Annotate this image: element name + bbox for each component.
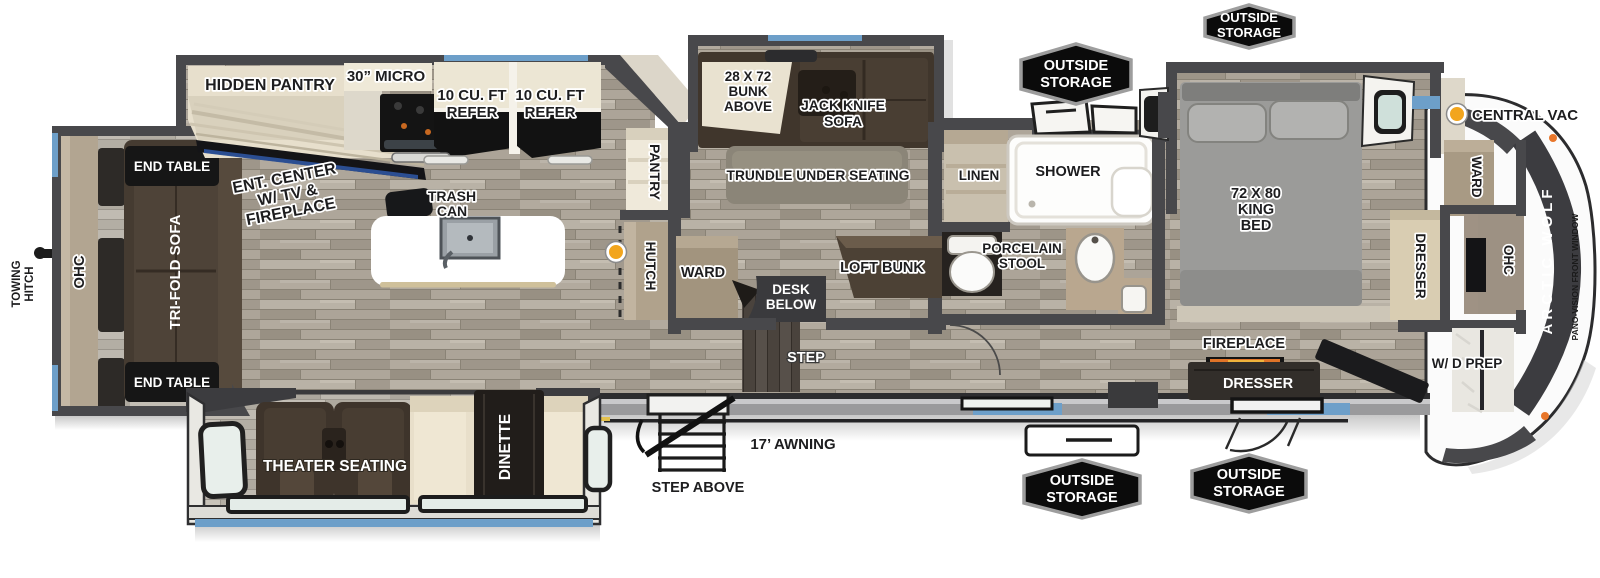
svg-text:10 CU. FT: 10 CU. FT: [515, 87, 584, 104]
svg-text:TRI-FOLD SOFA: TRI-FOLD SOFA: [167, 214, 184, 329]
svg-text:BELOW: BELOW: [766, 297, 817, 312]
svg-text:BUNK: BUNK: [729, 84, 768, 99]
svg-text:END TABLE: END TABLE: [134, 159, 210, 174]
svg-text:END TABLE: END TABLE: [134, 375, 210, 390]
svg-text:REFER: REFER: [447, 104, 498, 121]
svg-text:28 X 72: 28 X 72: [725, 69, 772, 84]
svg-text:72 X 80: 72 X 80: [1231, 186, 1281, 202]
svg-text:DRESSER: DRESSER: [1223, 376, 1294, 392]
svg-text:OHC: OHC: [71, 255, 88, 289]
svg-text:OHC: OHC: [1501, 245, 1516, 275]
svg-text:BED: BED: [1241, 218, 1272, 234]
svg-text:STORAGE: STORAGE: [1213, 484, 1285, 500]
svg-text:STEP: STEP: [787, 350, 825, 366]
svg-text:STEP ABOVE: STEP ABOVE: [652, 480, 745, 496]
svg-text:SOFA: SOFA: [824, 113, 862, 129]
svg-text:DESK: DESK: [772, 282, 810, 297]
svg-text:OUTSIDE: OUTSIDE: [1044, 58, 1109, 74]
svg-text:DINETTE: DINETTE: [497, 414, 514, 480]
svg-text:OUTSIDE: OUTSIDE: [1217, 467, 1282, 483]
svg-text:LINEN: LINEN: [959, 168, 1000, 183]
svg-text:ARCTIC WOLF: ARCTIC WOLF: [1539, 186, 1556, 335]
svg-text:ABOVE: ABOVE: [724, 99, 772, 114]
svg-text:PORCELAIN: PORCELAIN: [982, 241, 1062, 256]
svg-text:PANO-VISION FRONT WINDOW: PANO-VISION FRONT WINDOW: [1570, 213, 1580, 341]
svg-text:30” MICRO: 30” MICRO: [347, 68, 426, 85]
svg-text:REFER: REFER: [525, 104, 576, 121]
svg-text:HUTCH: HUTCH: [643, 242, 659, 291]
svg-text:STORAGE: STORAGE: [1046, 490, 1118, 506]
svg-text:SHOWER: SHOWER: [1035, 164, 1101, 180]
svg-text:HIDDEN PANTRY: HIDDEN PANTRY: [205, 77, 335, 94]
svg-text:TOWING: TOWING: [11, 260, 23, 307]
svg-text:OUTSIDE: OUTSIDE: [1050, 473, 1115, 489]
svg-text:FIREPLACE: FIREPLACE: [1203, 336, 1286, 352]
svg-text:DRESSER: DRESSER: [1413, 233, 1428, 299]
svg-text:THEATER SEATING: THEATER SEATING: [263, 458, 407, 475]
svg-text:PANTRY: PANTRY: [647, 144, 663, 201]
svg-text:KING: KING: [1238, 202, 1274, 218]
svg-text:TRASH: TRASH: [428, 188, 476, 204]
svg-text:10 CU. FT: 10 CU. FT: [437, 87, 506, 104]
svg-text:HITCH: HITCH: [24, 266, 36, 301]
svg-text:LOFT BUNK: LOFT BUNK: [840, 260, 924, 276]
svg-text:TRUNDLE UNDER SEATING: TRUNDLE UNDER SEATING: [727, 168, 910, 183]
svg-text:CENTRAL VAC: CENTRAL VAC: [1472, 107, 1578, 124]
svg-text:STORAGE: STORAGE: [1217, 25, 1281, 40]
svg-text:STORAGE: STORAGE: [1040, 75, 1112, 91]
svg-text:STOOL: STOOL: [999, 256, 1045, 271]
svg-text:W/ D PREP: W/ D PREP: [1432, 356, 1503, 371]
svg-text:WARD: WARD: [1469, 156, 1484, 197]
svg-text:CAN: CAN: [437, 203, 467, 219]
svg-text:JACK KNIFE: JACK KNIFE: [801, 97, 885, 113]
svg-text:WARD: WARD: [681, 265, 725, 281]
svg-text:17’ AWNING: 17’ AWNING: [750, 436, 835, 453]
svg-text:OUTSIDE: OUTSIDE: [1220, 10, 1278, 25]
